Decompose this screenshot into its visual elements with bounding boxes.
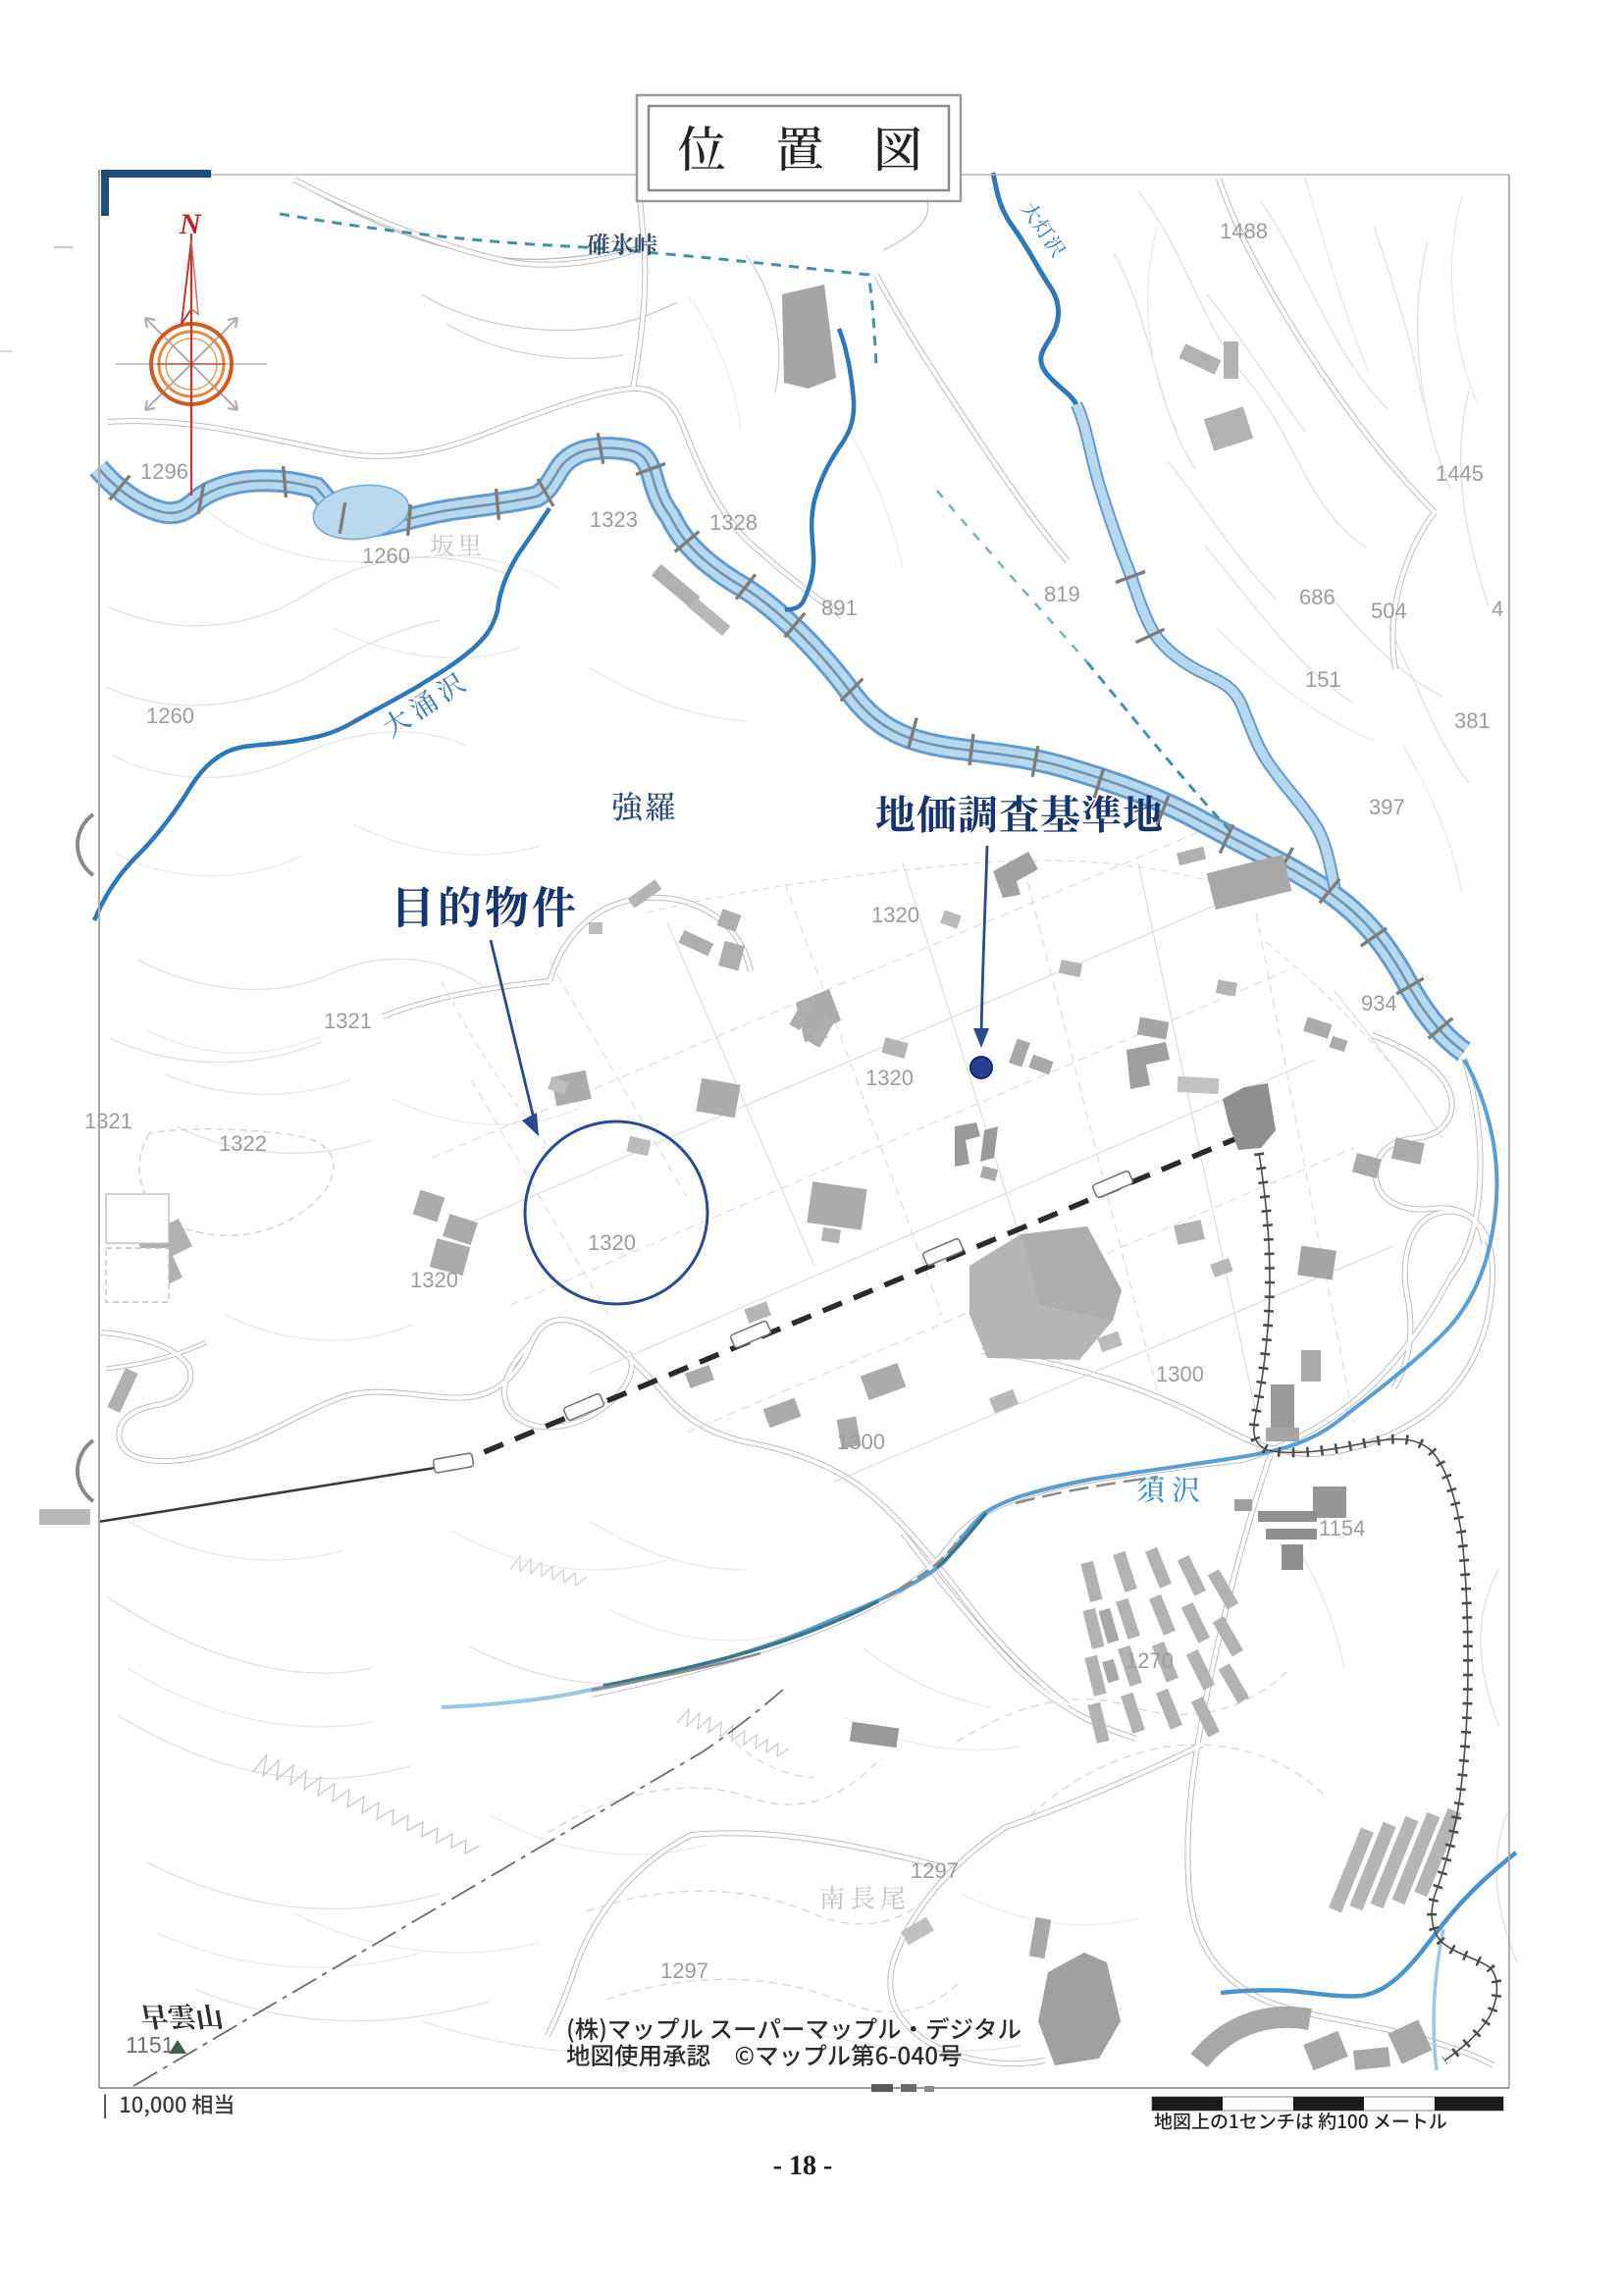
svg-text:381: 381 [1454, 708, 1491, 733]
svg-text:- 18 -: - 18 - [773, 2151, 833, 2181]
svg-text:1328: 1328 [709, 510, 758, 535]
svg-text:686: 686 [1299, 585, 1335, 609]
svg-text:1260: 1260 [362, 544, 410, 568]
svg-text:151: 151 [1305, 667, 1341, 692]
svg-text:1154: 1154 [1319, 1516, 1365, 1540]
svg-text:1297: 1297 [911, 1858, 959, 1883]
svg-text:1151: 1151 [126, 2032, 174, 2058]
svg-text:1445: 1445 [1436, 461, 1484, 486]
svg-text:1260: 1260 [146, 704, 194, 728]
svg-text:1321: 1321 [84, 1109, 132, 1133]
svg-text:1320: 1320 [871, 903, 919, 927]
svg-text:504: 504 [1371, 599, 1407, 623]
svg-text:1320: 1320 [588, 1230, 636, 1255]
svg-text:1322: 1322 [219, 1131, 267, 1156]
svg-text:1320: 1320 [865, 1066, 914, 1090]
svg-text:1296: 1296 [140, 459, 188, 484]
svg-text:819: 819 [1044, 582, 1080, 606]
svg-text:1300: 1300 [1156, 1362, 1204, 1386]
svg-text:934: 934 [1361, 991, 1397, 1016]
svg-text:N: N [179, 208, 202, 240]
svg-text:1320: 1320 [410, 1268, 458, 1292]
svg-text:1300: 1300 [837, 1430, 885, 1454]
svg-text:1297: 1297 [660, 1958, 708, 1983]
svg-text:4: 4 [1492, 597, 1503, 621]
svg-text:1270: 1270 [1126, 1648, 1174, 1673]
svg-text:1321: 1321 [324, 1009, 372, 1033]
svg-text:1488: 1488 [1220, 219, 1268, 243]
svg-text:891: 891 [821, 596, 858, 620]
svg-text:397: 397 [1369, 795, 1405, 819]
svg-text:1323: 1323 [590, 507, 638, 532]
